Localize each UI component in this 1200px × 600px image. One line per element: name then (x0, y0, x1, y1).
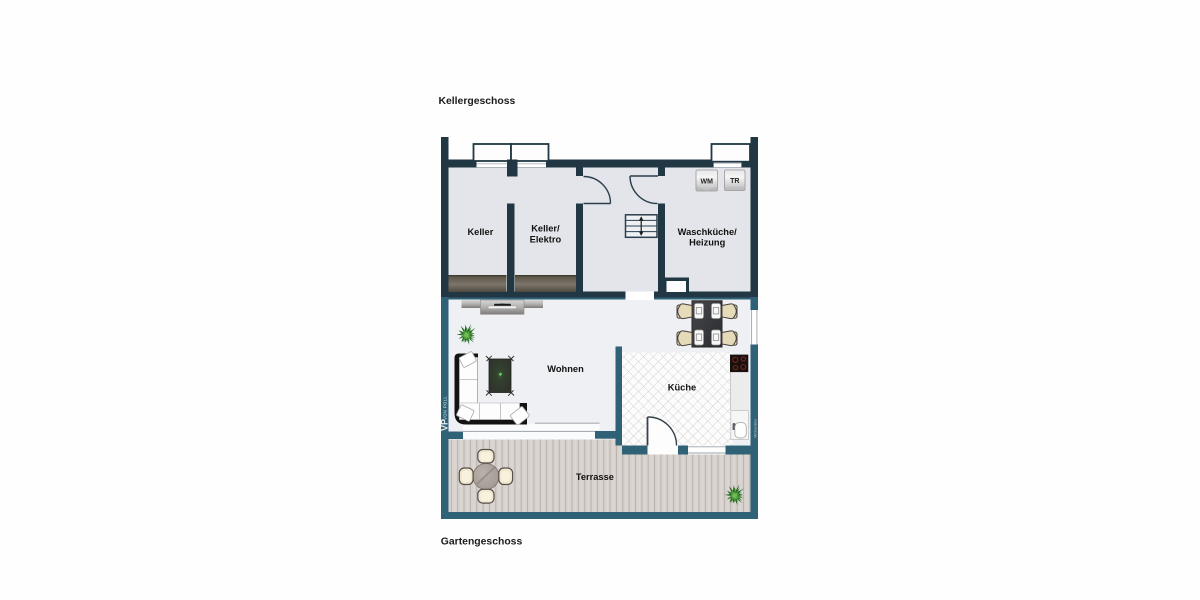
svg-text:Keller/: Keller/ (531, 223, 560, 233)
svg-text:MiGiardino: MiGiardino (753, 418, 758, 438)
svg-text:Kellergeschoss: Kellergeschoss (439, 96, 516, 107)
svg-text:Terrasse: Terrasse (576, 472, 614, 482)
svg-text:Wohnen: Wohnen (547, 364, 584, 374)
svg-text:Waschküche/: Waschküche/ (678, 227, 737, 237)
svg-text:Keller: Keller (467, 227, 493, 237)
svg-text:VON POLL: VON POLL (443, 396, 448, 420)
svg-text:WM: WM (700, 179, 713, 186)
svg-text:Elektro: Elektro (530, 234, 562, 244)
svg-text:Heizung: Heizung (689, 238, 725, 248)
svg-text:Küche: Küche (668, 382, 696, 392)
svg-text:TR: TR (730, 178, 739, 185)
svg-text:Gartengeschoss: Gartengeschoss (441, 537, 523, 548)
